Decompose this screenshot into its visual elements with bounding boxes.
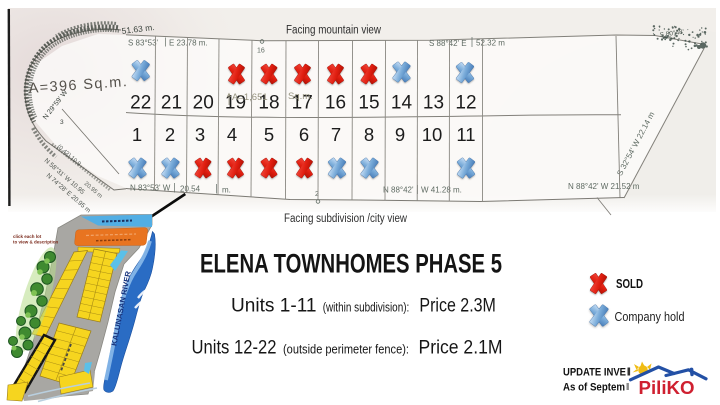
svg-text:20: 20 <box>193 93 214 114</box>
svg-text:9: 9 <box>395 124 405 145</box>
svg-text:16: 16 <box>257 48 265 55</box>
svg-text:Price 2.3M: Price 2.3M <box>419 296 496 317</box>
svg-text:3: 3 <box>60 119 64 126</box>
svg-text:N 88°42' W 21.52 m: N 88°42' W 21.52 m <box>568 182 640 191</box>
svg-text:16: 16 <box>325 93 346 114</box>
svg-text:2: 2 <box>165 124 175 145</box>
svg-text:SOLD: SOLD <box>616 277 643 291</box>
svg-text:Units 12-22: Units 12-22 <box>192 338 277 359</box>
svg-text:S 88°42' E: S 88°42' E <box>429 39 467 48</box>
svg-text:E 23.78 m.: E 23.78 m. <box>169 39 208 48</box>
svg-text:Sq.m.: Sq.m. <box>288 91 313 102</box>
svg-text:click each lot: click each lot <box>13 234 42 239</box>
svg-text:W 41.28 m.: W 41.28 m. <box>421 186 462 195</box>
svg-text:21: 21 <box>161 93 182 114</box>
svg-text:22: 22 <box>130 93 151 114</box>
svg-text:13: 13 <box>423 93 444 114</box>
svg-text:S 83°53': S 83°53' <box>128 39 159 48</box>
svg-text:(within subdivision):: (within subdivision): <box>323 301 410 315</box>
svg-text:15: 15 <box>358 93 379 114</box>
svg-text:7: 7 <box>331 124 341 145</box>
svg-text:Company hold: Company hold <box>615 309 685 324</box>
svg-text:1: 1 <box>132 124 142 145</box>
svg-text:UPDATE INVE: UPDATE INVE <box>563 367 626 379</box>
svg-text:to view & description: to view & description <box>13 240 59 245</box>
svg-text:As of Septem: As of Septem <box>563 382 625 394</box>
svg-text:Facing mountain view: Facing mountain view <box>286 25 382 37</box>
svg-text:N 83°53' W: N 83°53' W <box>130 184 171 193</box>
svg-text:4: 4 <box>227 124 237 145</box>
svg-text:A=1,651: A=1,651 <box>232 92 268 103</box>
svg-text:20.54: 20.54 <box>180 185 201 194</box>
svg-text:12: 12 <box>455 93 476 114</box>
svg-text:3: 3 <box>195 124 205 145</box>
svg-text:11: 11 <box>456 124 475 145</box>
svg-text:m.: m. <box>222 186 231 195</box>
svg-text:Units 1-11: Units 1-11 <box>231 296 317 317</box>
svg-text:6: 6 <box>299 124 309 145</box>
svg-text:ELENA TOWNHOMES PHASE 5: ELENA TOWNHOMES PHASE 5 <box>200 249 502 279</box>
svg-text:14: 14 <box>391 93 413 114</box>
svg-text:5: 5 <box>264 124 274 145</box>
svg-text:Price 2.1M: Price 2.1M <box>419 338 503 359</box>
svg-text:52.32 m: 52.32 m <box>476 39 505 48</box>
svg-text:10: 10 <box>422 124 443 145</box>
svg-text:PiliKO: PiliKO <box>639 378 695 398</box>
svg-text:8: 8 <box>364 124 374 145</box>
svg-text:Facing subdivision /city view: Facing subdivision /city view <box>284 213 408 225</box>
svg-text:N 88°42': N 88°42' <box>383 186 414 195</box>
svg-text:(outside perimeter fence):: (outside perimeter fence): <box>283 343 409 357</box>
